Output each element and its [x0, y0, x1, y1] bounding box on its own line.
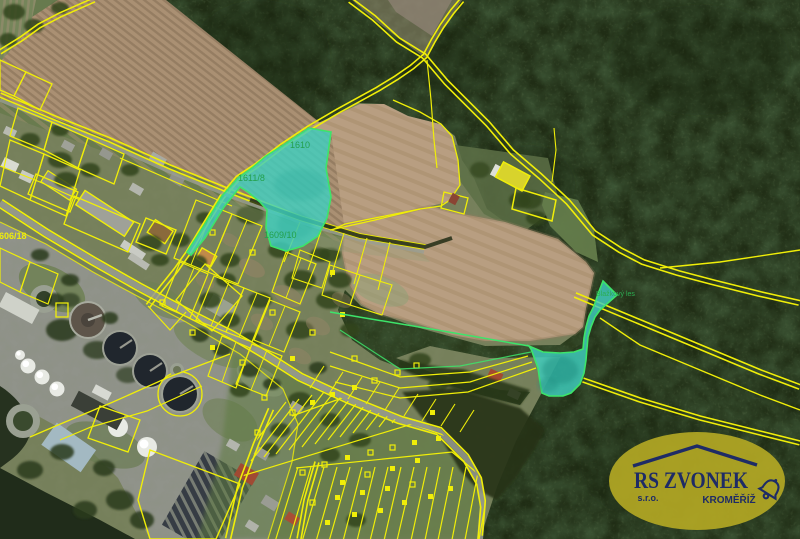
svg-text:1606/18: 1606/18 [0, 231, 27, 241]
svg-text:1609/10: 1609/10 [264, 230, 297, 240]
svg-text:1610: 1610 [290, 140, 310, 150]
svg-text:RS ZVONEK: RS ZVONEK [634, 468, 748, 493]
svg-text:1611/8: 1611/8 [238, 173, 265, 183]
svg-text:s.r.o.: s.r.o. [637, 493, 658, 503]
svg-text:Blažkový les: Blažkový les [596, 291, 635, 298]
svg-text:KROMĚŘÍŽ: KROMĚŘÍŽ [702, 493, 755, 506]
